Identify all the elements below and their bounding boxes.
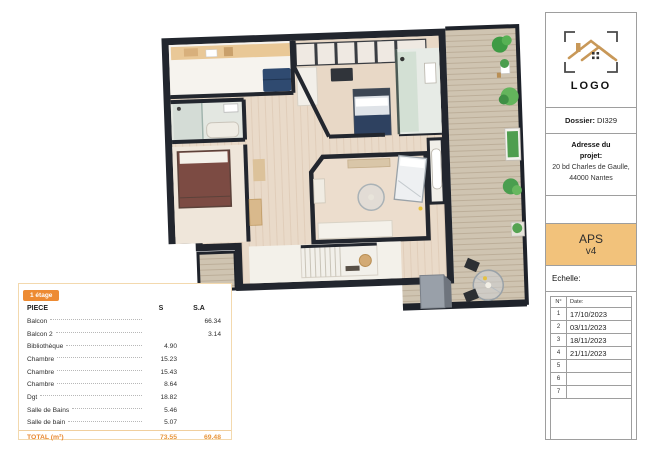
revision-row: 5 [551,360,632,373]
area-row-s: 15.43 [145,369,177,376]
area-row-name: Salle de Bains [27,407,69,414]
bench-seat [318,221,393,240]
revision-date: 21/11/2023 [567,347,632,360]
area-row: Chambre15.43 [19,366,231,379]
col-s: S [145,305,177,312]
dossier-value: DI329 [597,116,617,125]
revision-row: 421/11/2023 [551,347,632,360]
total-s: 73.55 [145,434,177,441]
dotted-leader [72,408,142,409]
revision-date [567,386,632,399]
phase-label: APS [579,232,603,246]
dotted-leader [50,319,142,320]
area-row-s: 8.64 [145,381,177,388]
area-table: 1 étage PIECE S S.A Balcon66.34Balcon 23… [18,283,232,440]
floor-badge: 1 étage [23,290,59,301]
total-label: TOTAL (m²) [27,434,64,441]
bathroom-right [428,139,444,203]
revision-no: 7 [551,386,567,399]
drawing-sheet: 1 étage PIECE S S.A Balcon66.34Balcon 23… [0,0,650,460]
area-rows: Balcon66.34Balcon 23.14Bibliothèque4.90C… [19,315,231,429]
dotted-leader [57,383,142,384]
dotted-leader [68,421,142,422]
area-row-s: 4.90 [145,343,177,350]
revision-no: 5 [551,360,567,373]
area-row-s: 18.82 [145,394,177,401]
area-row: Salle de bain5.07 [19,417,231,430]
area-row-name: Salle de bain [27,419,65,426]
bathroom-left [171,100,245,143]
area-row-name: Balcon 2 [27,331,53,338]
scale-cell: Echelle: [545,266,637,292]
revision-date [567,360,632,373]
shelf [348,159,390,168]
area-row-sa: 66.34 [177,318,223,325]
revision-row: 6 [551,373,632,386]
bathroom-top-right [396,48,442,134]
dotted-leader [40,395,142,396]
revision-date [567,373,632,386]
area-row-name: Bibliothèque [27,343,63,350]
area-row-name: Dgt [27,394,37,401]
floor-plan [148,6,548,326]
bathtub-right [431,149,441,189]
desk-papers [206,50,217,57]
area-row: Chambre15.23 [19,353,231,366]
bedroom-centre [311,153,430,242]
revisions-empty-box [550,399,632,440]
revision-row: 203/11/2023 [551,321,632,334]
logo-text: LOGO [571,80,611,92]
address-value: 20 bd Charles de Gaulle, 44000 Nantes [552,164,629,182]
dossier-label: Dossier: [565,116,595,125]
area-row-name: Chambre [27,381,54,388]
area-row-s: 15.23 [145,356,177,363]
revision-no: 2 [551,321,567,334]
sink [224,104,238,112]
empty-cell [545,196,637,224]
area-row: Balcon 23.14 [19,328,231,341]
scale-label: Echelle: [552,274,580,283]
staircase [301,244,378,278]
grey-block [420,274,452,308]
area-table-header: PIECE S S.A [19,302,231,315]
library-room [169,41,294,97]
door-leaf [249,199,262,225]
revisions-cell: N° Date: 117/10/2023203/11/2023318/11/20… [545,292,637,440]
revision-no: 1 [551,308,567,321]
wardrobe [297,67,318,106]
floor-mat [253,159,266,181]
dotted-leader [66,345,142,346]
area-total-row: TOTAL (m²) 73.55 69.48 [19,430,231,444]
side-table [313,179,325,203]
col-sa: S.A [177,305,223,312]
col-piece: PIECE [27,305,48,312]
dotted-leader [57,357,142,358]
area-row-s: 5.46 [145,407,177,414]
phase-version: v4 [586,246,597,257]
revision-date: 18/11/2023 [567,334,632,347]
revision-date: 17/10/2023 [567,308,632,321]
revision-row: 117/10/2023 [551,308,632,321]
dotted-leader [56,332,142,333]
area-row-s: 5.07 [145,419,177,426]
area-row: Chambre8.64 [19,378,231,391]
phase-cell: APS v4 [545,224,637,266]
revision-no: 3 [551,334,567,347]
dossier-cell: Dossier: DI329 [545,108,637,134]
revisions-table: N° Date: 117/10/2023203/11/2023318/11/20… [550,296,632,399]
revision-rows: 117/10/2023203/11/2023318/11/2023421/11/… [551,308,632,399]
area-row-name: Chambre [27,356,54,363]
revision-row: 318/11/2023 [551,334,632,347]
books [345,266,359,271]
bed-white [394,155,426,202]
total-sa: 69.48 [177,434,223,441]
area-row: Salle de Bains5.46 [19,404,231,417]
dark-bench [331,68,353,82]
area-row: Bibliothèque4.90 [19,340,231,353]
bed-top [353,89,391,136]
area-row: Balcon66.34 [19,315,231,328]
house-logo-icon [562,29,620,75]
revision-no: 6 [551,373,567,386]
revision-date: 03/11/2023 [567,321,632,334]
area-row: Dgt18.82 [19,391,231,404]
logo-cell: LOGO [545,12,637,108]
area-row-name: Balcon [27,318,47,325]
address-label: Adresse du projet: [561,139,621,161]
area-row-name: Chambre [27,369,54,376]
revision-row: 7 [551,386,632,399]
title-block: LOGO Dossier: DI329 Adresse du projet: 2… [545,12,637,440]
area-row-sa: 3.14 [177,331,223,338]
revision-col-date: Date: [567,297,632,308]
address-cell: Adresse du projet: 20 bd Charles de Gaul… [545,134,637,196]
basket [359,254,371,266]
revision-col-no: N° [551,297,567,308]
revision-no: 4 [551,347,567,360]
dotted-leader [57,370,142,371]
bathtub-left [206,122,239,138]
